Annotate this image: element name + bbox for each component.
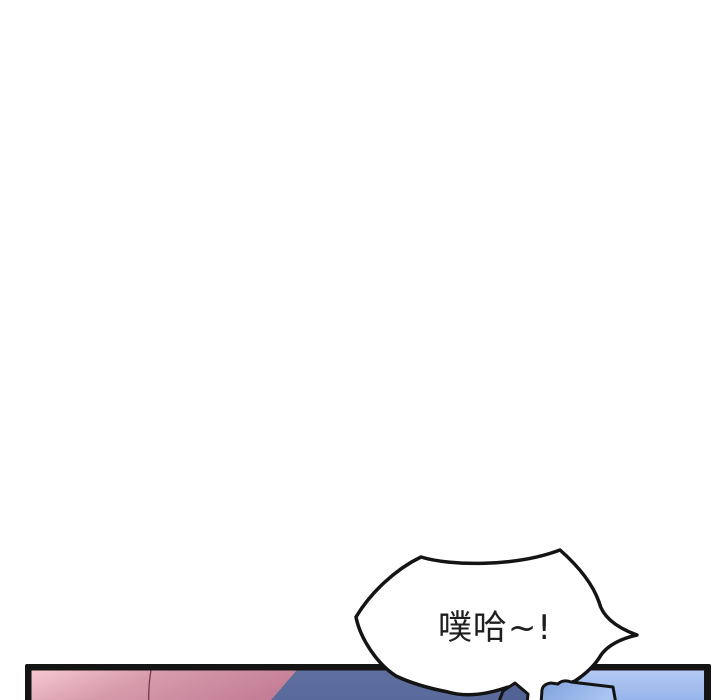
speech-bubble-text: 噗哈~! <box>375 610 615 646</box>
webtoon-page: 噗哈~! <box>0 0 720 700</box>
pink-region <box>31 670 297 700</box>
comic-artwork <box>0 0 720 700</box>
